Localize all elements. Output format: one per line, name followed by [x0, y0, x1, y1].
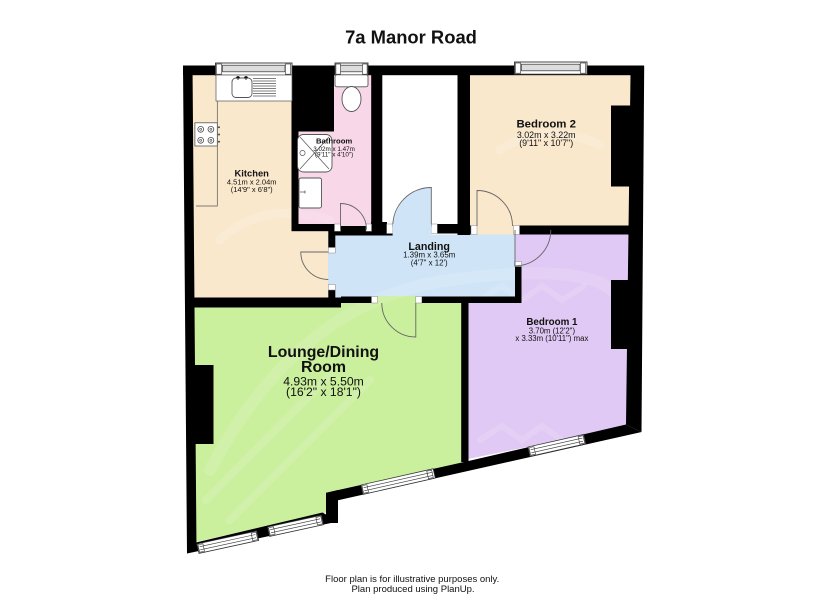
svg-text:(4'7" x 12'): (4'7" x 12'): [411, 259, 448, 268]
svg-text:(9'11" x 10'7"): (9'11" x 10'7"): [519, 138, 573, 148]
svg-text:Plan produced using PlanUp.: Plan produced using PlanUp.: [351, 584, 474, 595]
svg-text:(16'2" x 18'1"): (16'2" x 18'1"): [286, 385, 361, 399]
svg-text:Bedroom 2: Bedroom 2: [516, 119, 576, 131]
svg-text:(9'11" x 4'10"): (9'11" x 4'10"): [315, 152, 353, 159]
svg-text:Bathroom: Bathroom: [316, 137, 352, 146]
svg-text:(14'9" x 6'8"): (14'9" x 6'8"): [231, 185, 273, 194]
svg-text:x 3.33m (10'11") max: x 3.33m (10'11") max: [515, 334, 588, 343]
svg-text:7a Manor Road: 7a Manor Road: [345, 27, 477, 48]
